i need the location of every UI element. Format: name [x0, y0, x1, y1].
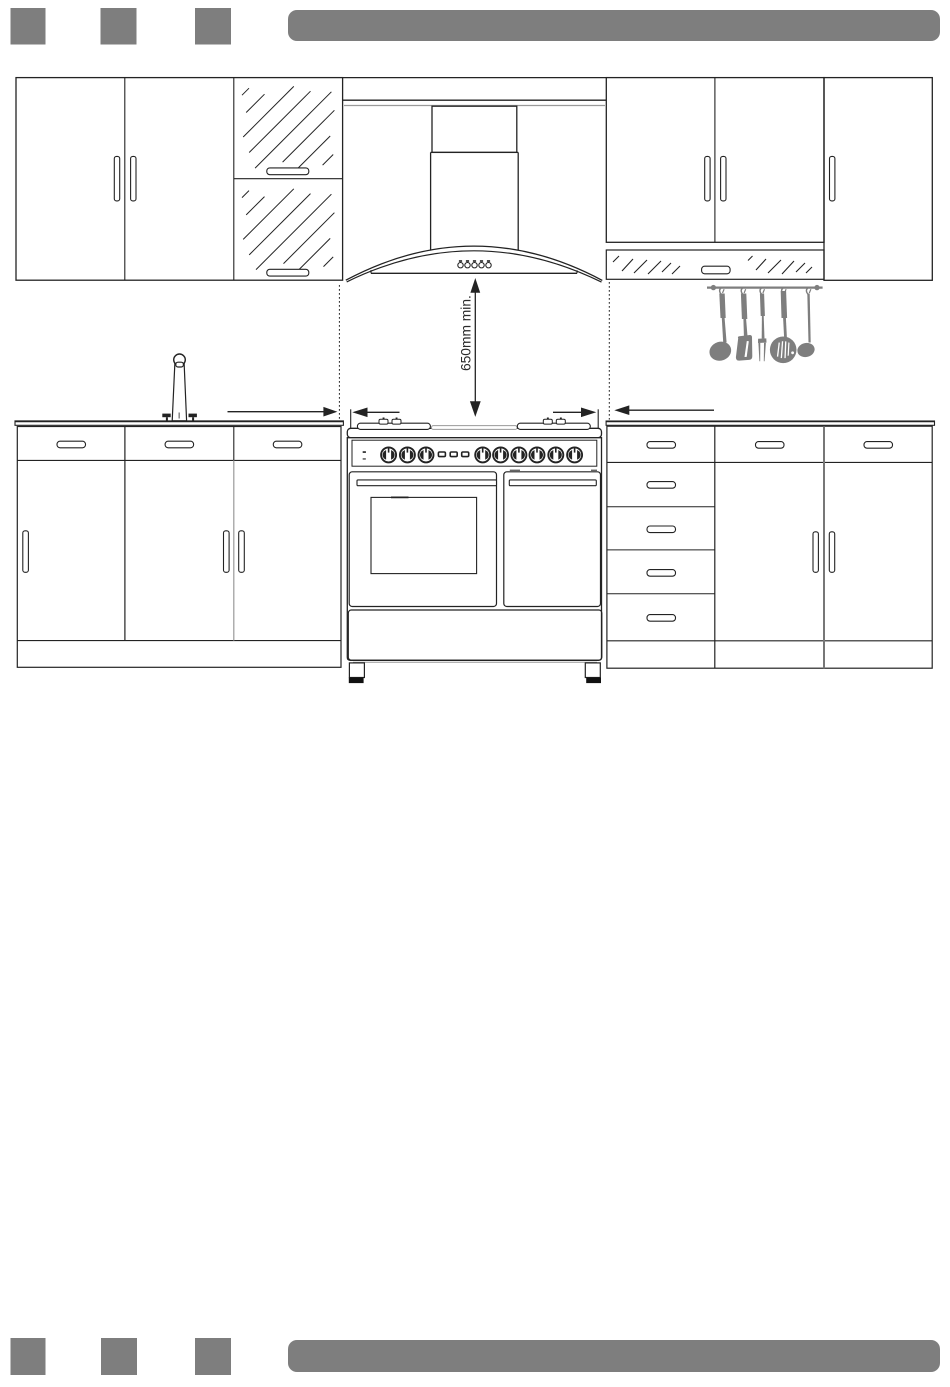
svg-text:650mm min.: 650mm min.: [458, 295, 473, 371]
